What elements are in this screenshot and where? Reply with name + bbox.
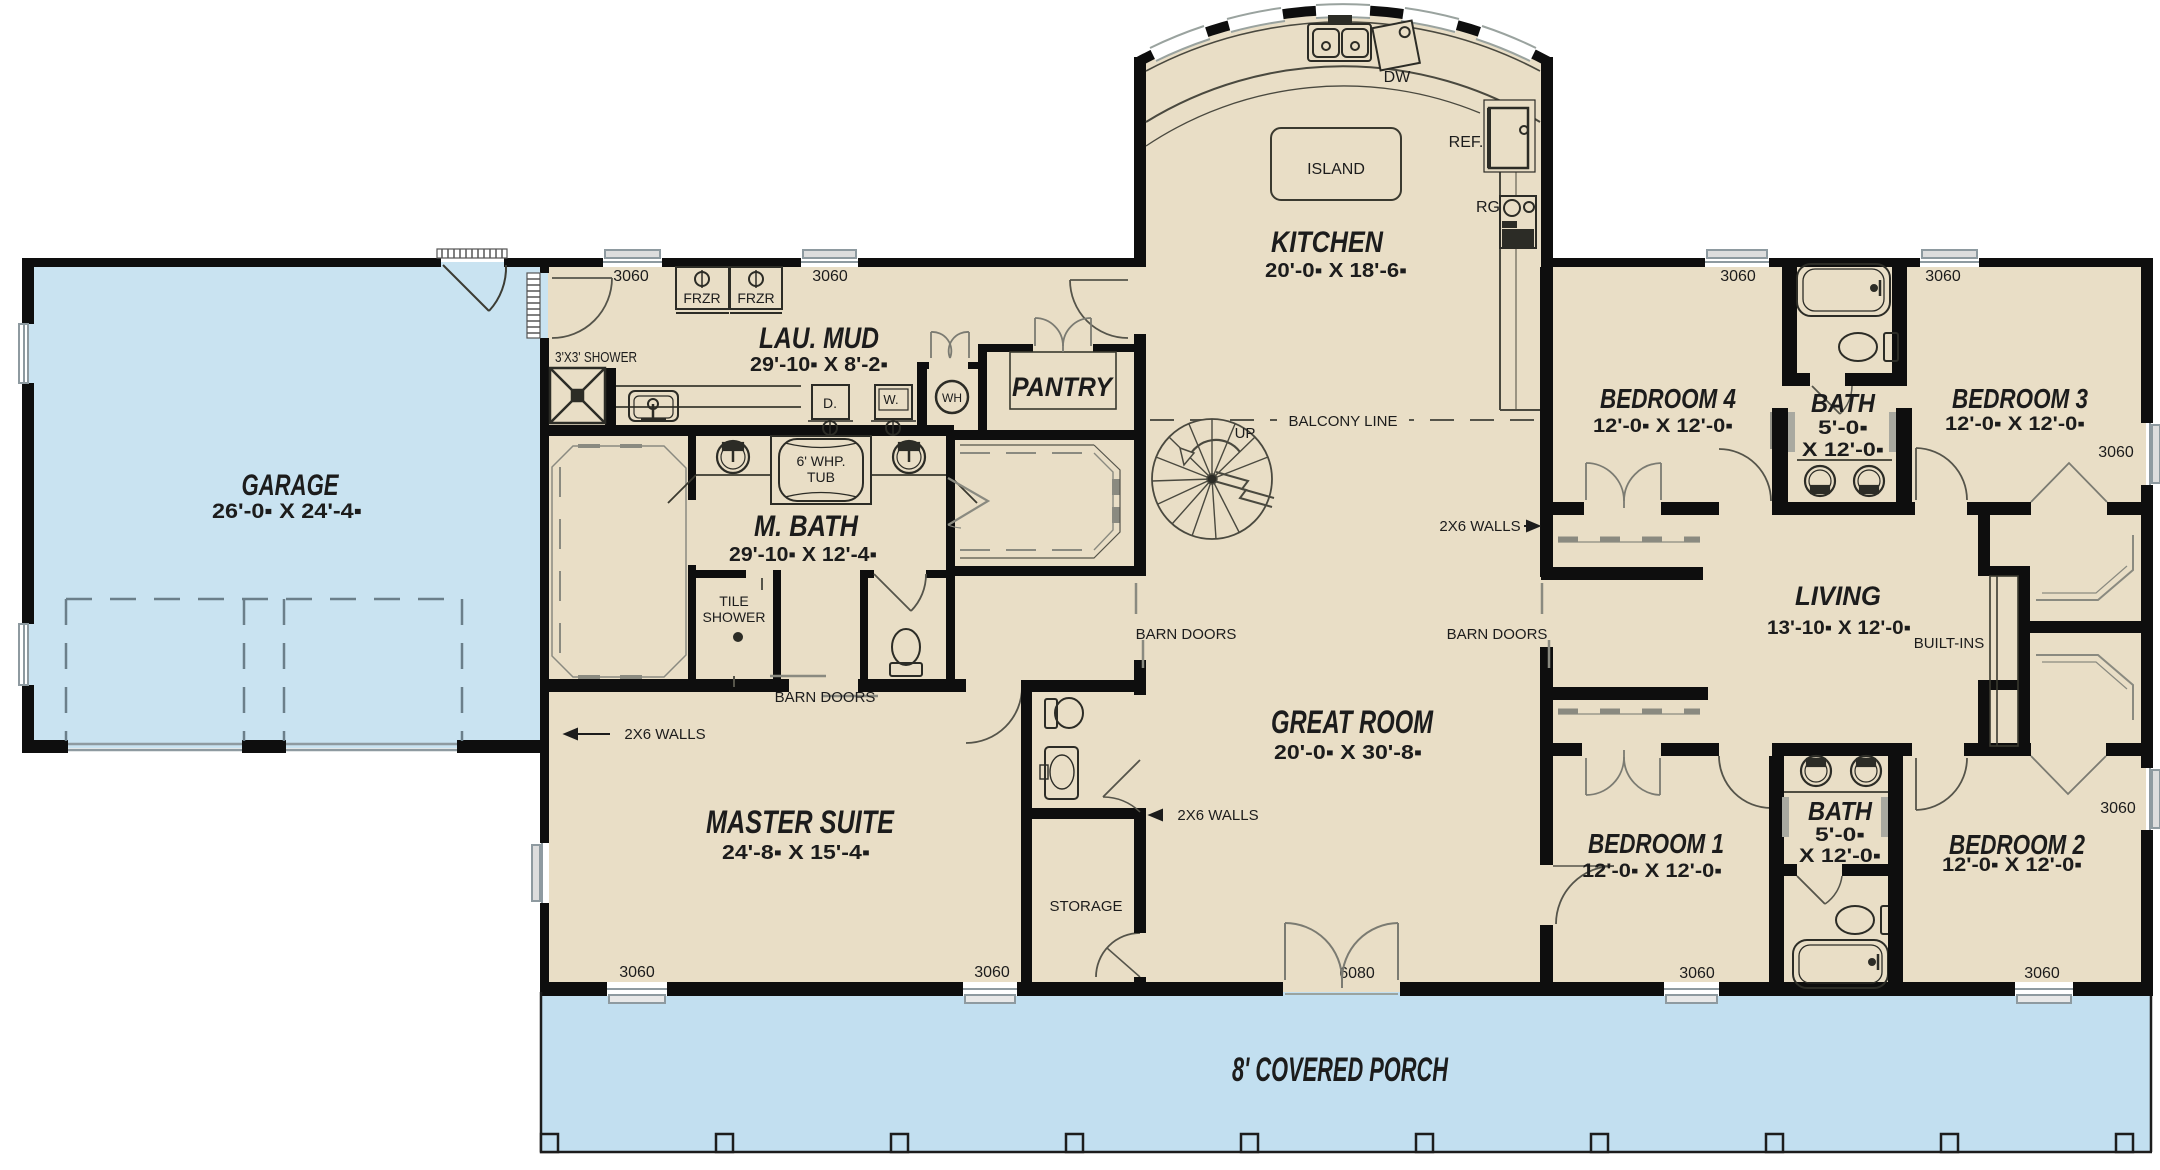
svg-text:LIVING: LIVING bbox=[1795, 581, 1881, 611]
svg-text:12'-0▪ X 12'-0▪: 12'-0▪ X 12'-0▪ bbox=[1582, 861, 1722, 882]
svg-text:BARN DOORS: BARN DOORS bbox=[1447, 626, 1548, 643]
svg-text:5'-0▪: 5'-0▪ bbox=[1818, 418, 1868, 439]
svg-text:BATH: BATH bbox=[1808, 796, 1873, 826]
svg-text:RG: RG bbox=[1476, 199, 1500, 216]
svg-text:FRZR: FRZR bbox=[737, 290, 774, 306]
svg-text:DW: DW bbox=[1384, 69, 1412, 86]
svg-text:GREAT ROOM: GREAT ROOM bbox=[1271, 704, 1434, 740]
svg-text:20'-0▪ X 30'-8▪: 20'-0▪ X 30'-8▪ bbox=[1274, 742, 1422, 764]
svg-text:3060: 3060 bbox=[2100, 800, 2136, 817]
svg-text:X 12'-0▪: X 12'-0▪ bbox=[1802, 440, 1884, 461]
svg-text:SHOWER: SHOWER bbox=[703, 609, 766, 625]
svg-text:KITCHEN: KITCHEN bbox=[1271, 226, 1384, 259]
svg-text:TILE: TILE bbox=[719, 593, 749, 609]
svg-text:M. BATH: M. BATH bbox=[754, 510, 859, 543]
svg-text:W.: W. bbox=[883, 392, 898, 407]
svg-text:3060: 3060 bbox=[1925, 268, 1961, 285]
svg-text:12'-0▪ X 12'-0▪: 12'-0▪ X 12'-0▪ bbox=[1945, 414, 2085, 435]
svg-text:2X6 WALLS: 2X6 WALLS bbox=[1439, 518, 1520, 535]
svg-text:12'-0▪ X 12'-0▪: 12'-0▪ X 12'-0▪ bbox=[1942, 855, 2082, 876]
svg-text:BARN DOORS: BARN DOORS bbox=[1136, 626, 1237, 643]
svg-text:BARN DOORS: BARN DOORS bbox=[775, 689, 876, 706]
svg-text:3'X3' SHOWER: 3'X3' SHOWER bbox=[555, 349, 637, 366]
svg-text:3060: 3060 bbox=[812, 268, 848, 285]
svg-text:3060: 3060 bbox=[1720, 268, 1756, 285]
svg-text:WH: WH bbox=[942, 391, 962, 405]
svg-text:8' COVERED PORCH: 8' COVERED PORCH bbox=[1232, 1051, 1449, 1089]
svg-text:24'-8▪ X 15'-4▪: 24'-8▪ X 15'-4▪ bbox=[722, 842, 870, 864]
svg-text:REF.: REF. bbox=[1449, 134, 1484, 151]
svg-text:PANTRY: PANTRY bbox=[1012, 372, 1115, 402]
svg-text:FRZR: FRZR bbox=[683, 290, 720, 306]
svg-text:MASTER SUITE: MASTER SUITE bbox=[706, 804, 895, 840]
svg-text:ISLAND: ISLAND bbox=[1307, 161, 1365, 178]
svg-text:6080: 6080 bbox=[1339, 965, 1375, 982]
svg-text:6' WHP.: 6' WHP. bbox=[796, 453, 845, 469]
svg-text:3060: 3060 bbox=[2024, 965, 2060, 982]
svg-text:D.: D. bbox=[823, 395, 837, 411]
svg-text:5'-0▪: 5'-0▪ bbox=[1815, 825, 1865, 846]
svg-text:BATH: BATH bbox=[1811, 388, 1876, 418]
svg-text:LAU. MUD: LAU. MUD bbox=[759, 322, 879, 355]
svg-text:BALCONY LINE: BALCONY LINE bbox=[1289, 413, 1398, 430]
svg-text:BEDROOM 1: BEDROOM 1 bbox=[1588, 828, 1724, 859]
svg-text:3060: 3060 bbox=[613, 268, 649, 285]
svg-text:29'-10▪ X 12'-4▪: 29'-10▪ X 12'-4▪ bbox=[729, 544, 877, 566]
svg-text:29'-10▪ X 8'-2▪: 29'-10▪ X 8'-2▪ bbox=[750, 354, 888, 376]
svg-text:STORAGE: STORAGE bbox=[1049, 898, 1122, 915]
svg-text:3060: 3060 bbox=[974, 964, 1010, 981]
svg-text:3060: 3060 bbox=[2098, 444, 2134, 461]
svg-text:BEDROOM 4: BEDROOM 4 bbox=[1600, 383, 1736, 414]
svg-text:UP: UP bbox=[1235, 425, 1256, 442]
svg-text:26'-0▪ X 24'-4▪: 26'-0▪ X 24'-4▪ bbox=[212, 500, 362, 523]
svg-text:2X6 WALLS: 2X6 WALLS bbox=[624, 726, 705, 743]
svg-text:13'-10▪ X 12'-0▪: 13'-10▪ X 12'-0▪ bbox=[1767, 618, 1911, 639]
svg-text:3060: 3060 bbox=[619, 964, 655, 981]
svg-text:2X6 WALLS: 2X6 WALLS bbox=[1177, 807, 1258, 824]
svg-text:BEDROOM 3: BEDROOM 3 bbox=[1952, 383, 2088, 414]
svg-text:BUILT-INS: BUILT-INS bbox=[1914, 635, 1985, 652]
svg-text:X 12'-0▪: X 12'-0▪ bbox=[1799, 846, 1881, 867]
svg-text:12'-0▪ X 12'-0▪: 12'-0▪ X 12'-0▪ bbox=[1593, 416, 1733, 437]
svg-text:20'-0▪ X 18'-6▪: 20'-0▪ X 18'-6▪ bbox=[1265, 260, 1407, 282]
svg-text:TUB: TUB bbox=[807, 469, 835, 485]
svg-text:3060: 3060 bbox=[1679, 965, 1715, 982]
svg-text:GARAGE: GARAGE bbox=[242, 469, 340, 502]
